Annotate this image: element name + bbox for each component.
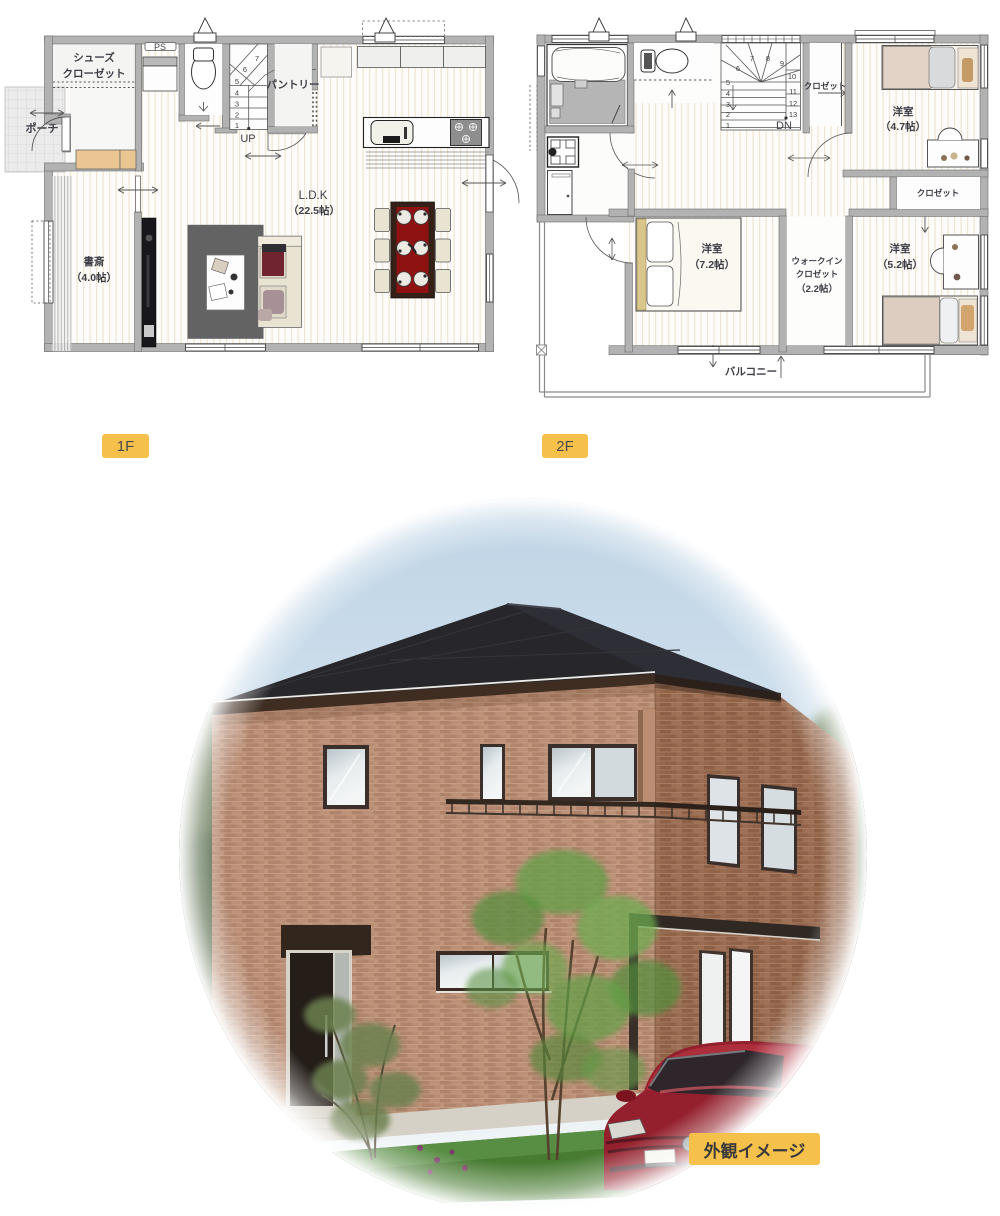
svg-text:5: 5 <box>726 78 730 87</box>
svg-text:9: 9 <box>780 59 784 68</box>
svg-text:DN: DN <box>776 120 792 132</box>
svg-text:12: 12 <box>789 99 797 108</box>
svg-text:5: 5 <box>235 77 239 86</box>
svg-text:（4.0帖）: （4.0帖） <box>71 271 117 284</box>
svg-text:ウォークイン: ウォークイン <box>791 256 843 266</box>
svg-text:クロゼット: クロゼット <box>804 81 847 91</box>
svg-text:PS: PS <box>154 42 166 52</box>
svg-text:10: 10 <box>788 72 796 81</box>
svg-text:（22.5帖）: （22.5帖） <box>288 204 340 217</box>
svg-text:7: 7 <box>255 54 259 63</box>
svg-text:2: 2 <box>726 110 730 119</box>
svg-text:クロゼット: クロゼット <box>917 188 960 198</box>
svg-text:3: 3 <box>235 100 239 109</box>
svg-text:書斎: 書斎 <box>84 255 105 268</box>
svg-text:洋室: 洋室 <box>702 242 723 255</box>
svg-text:11: 11 <box>789 87 797 96</box>
svg-text:UP: UP <box>240 133 255 145</box>
svg-text:シューズ: シューズ <box>73 51 115 64</box>
svg-text:L.D.K: L.D.K <box>299 190 328 202</box>
svg-text:（4.7帖）: （4.7帖） <box>880 120 926 133</box>
svg-text:（2.2帖）: （2.2帖） <box>796 283 838 295</box>
svg-text:洋室: 洋室 <box>890 242 911 255</box>
svg-text:（7.2帖）: （7.2帖） <box>689 258 735 271</box>
svg-text:6: 6 <box>243 65 247 74</box>
svg-text:4: 4 <box>726 89 730 98</box>
svg-text:8: 8 <box>766 54 770 63</box>
svg-text:1: 1 <box>235 121 239 130</box>
svg-text:4: 4 <box>235 89 239 98</box>
svg-text:パントリー: パントリー <box>266 79 319 91</box>
svg-text:7: 7 <box>750 54 754 63</box>
svg-text:13: 13 <box>789 110 797 119</box>
svg-text:2: 2 <box>235 111 239 120</box>
svg-text:3: 3 <box>726 100 730 109</box>
svg-text:（5.2帖）: （5.2帖） <box>877 258 923 271</box>
svg-text:洋室: 洋室 <box>893 105 914 118</box>
svg-text:1: 1 <box>726 121 730 130</box>
svg-text:バルコニー: バルコニー <box>725 366 777 378</box>
svg-text:クロゼット: クロゼット <box>796 269 839 279</box>
svg-text:クローゼット: クローゼット <box>63 67 126 80</box>
svg-text:6: 6 <box>736 64 740 73</box>
